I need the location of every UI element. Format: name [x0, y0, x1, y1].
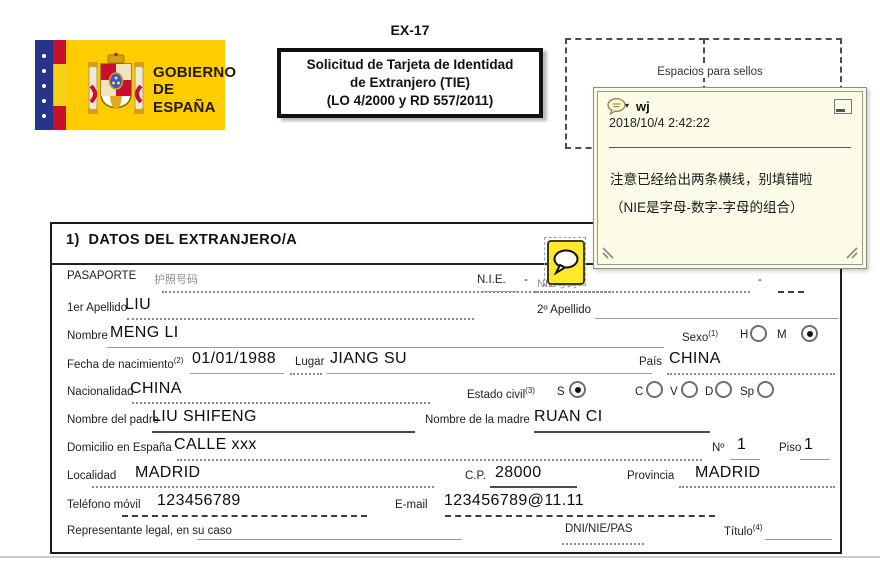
comment-annotation-icon[interactable]: [547, 240, 585, 285]
section-datos-extranjero: 1) DATOS DEL EXTRANJERO/A PASAPORTE 护照号码…: [50, 222, 842, 554]
lugar-value[interactable]: JIANG SU: [330, 350, 407, 368]
logo-wordmark: GOBIERNO DE ESPAÑA: [153, 64, 236, 116]
titulo-label: Título(4): [724, 523, 763, 538]
note-resize-handle-left-icon[interactable]: [602, 246, 618, 260]
speech-bubble-icon: [549, 242, 583, 283]
page-bottom-edge: [0, 556, 880, 558]
estado-c-label: C: [635, 386, 643, 398]
numero-line[interactable]: [730, 459, 760, 460]
nombre-value[interactable]: MENG LI: [110, 324, 179, 342]
piso-value[interactable]: 1: [804, 436, 813, 454]
pasaporte-hint: 护照号码: [154, 271, 198, 287]
logo-blue-band: [35, 40, 53, 130]
note-divider: [609, 147, 851, 148]
form-title-line2: de Extranjero (TIE): [281, 74, 539, 92]
piso-line[interactable]: [800, 459, 830, 460]
note-resize-handle-right-icon[interactable]: [842, 246, 858, 260]
provincia-label: Provincia: [627, 470, 674, 482]
spain-flag-stripe: [53, 40, 66, 130]
apellido2-label: 2º Apellido: [537, 304, 591, 316]
email-label: E-mail: [395, 499, 428, 511]
fecha-line-dots[interactable]: [290, 373, 322, 375]
nacionalidad-label: Nacionalidad: [67, 386, 134, 398]
representante-line[interactable]: [197, 539, 462, 540]
note-minimize-button[interactable]: [834, 99, 852, 114]
email-line[interactable]: [445, 515, 715, 517]
nie-label: N.I.E.: [477, 274, 506, 286]
domicilio-line[interactable]: [177, 459, 702, 461]
domicilio-label: Domicilio en España: [67, 442, 172, 454]
cp-value[interactable]: 28000: [495, 464, 542, 482]
cp-label: C.P.: [465, 470, 486, 482]
apellido1-value[interactable]: LIU: [125, 296, 151, 314]
estado-sp-radio[interactable]: [757, 381, 774, 398]
domicilio-value[interactable]: CALLE xxx: [174, 436, 257, 454]
apellido2-line[interactable]: [595, 318, 838, 319]
email-value[interactable]: 123456789@11.11: [444, 492, 584, 510]
sticky-note-popup[interactable]: ▾ wj 2018/10/4 2:42:22 注意已经给出两条横线，别填错啦 （…: [593, 87, 867, 269]
telefono-value[interactable]: 123456789: [157, 492, 241, 510]
fecha-line[interactable]: [190, 373, 284, 374]
sticky-note-body[interactable]: ▾ wj 2018/10/4 2:42:22 注意已经给出两条横线，别填错啦 （…: [597, 91, 863, 265]
fecha-value[interactable]: 01/01/1988: [192, 350, 276, 368]
dni-line[interactable]: [562, 543, 644, 545]
note-timestamp: 2018/10/4 2:42:22: [609, 116, 710, 130]
note-author: wj: [636, 99, 650, 114]
note-menu-caret-icon[interactable]: ▾: [625, 101, 629, 110]
madre-label: Nombre de la madre: [425, 414, 530, 426]
nombre-label: Nombre: [67, 330, 108, 342]
telefono-line[interactable]: [122, 515, 367, 517]
piso-label: Piso: [779, 442, 801, 454]
padre-label: Nombre del padre: [67, 414, 159, 426]
section-title: 1) DATOS DEL EXTRANJERO/A: [66, 232, 297, 248]
estado-d-radio[interactable]: [715, 381, 732, 398]
padre-line[interactable]: [152, 431, 415, 433]
pais-line[interactable]: [667, 373, 835, 375]
logo-line2: DE ESPAÑA: [153, 81, 236, 116]
nie-line-3[interactable]: [778, 291, 804, 293]
note-text-line1[interactable]: 注意已经给出两条横线，别填错啦: [610, 168, 813, 188]
form-title-line3: (LO 4/2000 y RD 557/2011): [281, 92, 539, 110]
localidad-line[interactable]: [92, 486, 434, 488]
madre-value[interactable]: RUAN CI: [534, 408, 603, 426]
nie-line-1[interactable]: [482, 291, 517, 292]
apellido1-label: 1er Apellido: [67, 302, 127, 314]
form-title-line1: Solicitud de Tarjeta de Identidad: [281, 56, 539, 74]
telefono-label: Teléfono móvil: [67, 499, 141, 511]
estado-s-label: S: [557, 386, 565, 398]
provincia-value[interactable]: MADRID: [695, 464, 761, 482]
eu-stars-icon: [35, 40, 53, 130]
nacionalidad-line[interactable]: [132, 402, 430, 404]
estado-v-radio[interactable]: [681, 381, 698, 398]
note-text-line2[interactable]: （NIE是字母-数字-字母的组合）: [610, 196, 804, 216]
titulo-line[interactable]: [765, 539, 832, 540]
apellido1-line[interactable]: [127, 318, 474, 320]
pasaporte-label: PASAPORTE: [67, 270, 136, 282]
pais-label: País: [639, 356, 662, 368]
lugar-label: Lugar: [295, 356, 324, 368]
coat-of-arms-icon: [87, 52, 145, 123]
document-page: GOBIERNO DE ESPAÑA EX-17 Solicitud de Ta…: [0, 0, 880, 563]
padre-value[interactable]: LIU SHIFENG: [152, 408, 257, 426]
pais-value[interactable]: CHINA: [669, 350, 721, 368]
lugar-line[interactable]: [327, 373, 652, 374]
stamp-area-label: Espacios para sellos: [645, 66, 775, 78]
fecha-label: Fecha de nacimiento(2): [67, 356, 184, 371]
dni-label: DNI/NIE/PAS: [565, 523, 633, 535]
localidad-label: Localidad: [67, 470, 116, 482]
provincia-line[interactable]: [679, 486, 835, 488]
representante-label: Representante legal, en su caso: [67, 525, 232, 537]
numero-label: Nº: [712, 442, 725, 454]
estado-civil-label: Estado civil(3): [467, 386, 535, 401]
gobierno-espana-logo: GOBIERNO DE ESPAÑA: [35, 40, 225, 130]
sexo-label: Sexo(1): [682, 329, 718, 344]
form-title-box: Solicitud de Tarjeta de Identidad de Ext…: [277, 48, 543, 118]
estado-c-radio[interactable]: [646, 381, 663, 398]
comment-bubble-icon: [607, 98, 626, 115]
estado-sp-label: Sp: [740, 386, 754, 398]
sexo-option-m-label: M: [777, 329, 787, 341]
sexo-option-h-label: H: [740, 329, 748, 341]
estado-v-label: V: [670, 386, 678, 398]
comment-annotation-selection[interactable]: [544, 237, 586, 286]
logo-line1: GOBIERNO: [153, 64, 236, 81]
madre-line[interactable]: [534, 431, 710, 433]
nombre-line[interactable]: [107, 347, 664, 348]
nie-dash-2: -: [758, 274, 762, 286]
nie-dash-1: -: [524, 274, 528, 286]
numero-value[interactable]: 1: [737, 436, 746, 454]
localidad-value[interactable]: MADRID: [135, 464, 201, 482]
cp-line[interactable]: [490, 486, 577, 488]
form-code: EX-17: [277, 22, 543, 38]
nie-line-2[interactable]: [535, 291, 750, 293]
estado-d-label: D: [705, 386, 713, 398]
sexo-option-h-radio[interactable]: [750, 325, 767, 342]
sexo-option-m-radio[interactable]: [801, 325, 818, 342]
estado-s-radio[interactable]: [569, 381, 586, 398]
nacionalidad-value[interactable]: CHINA: [130, 380, 182, 398]
